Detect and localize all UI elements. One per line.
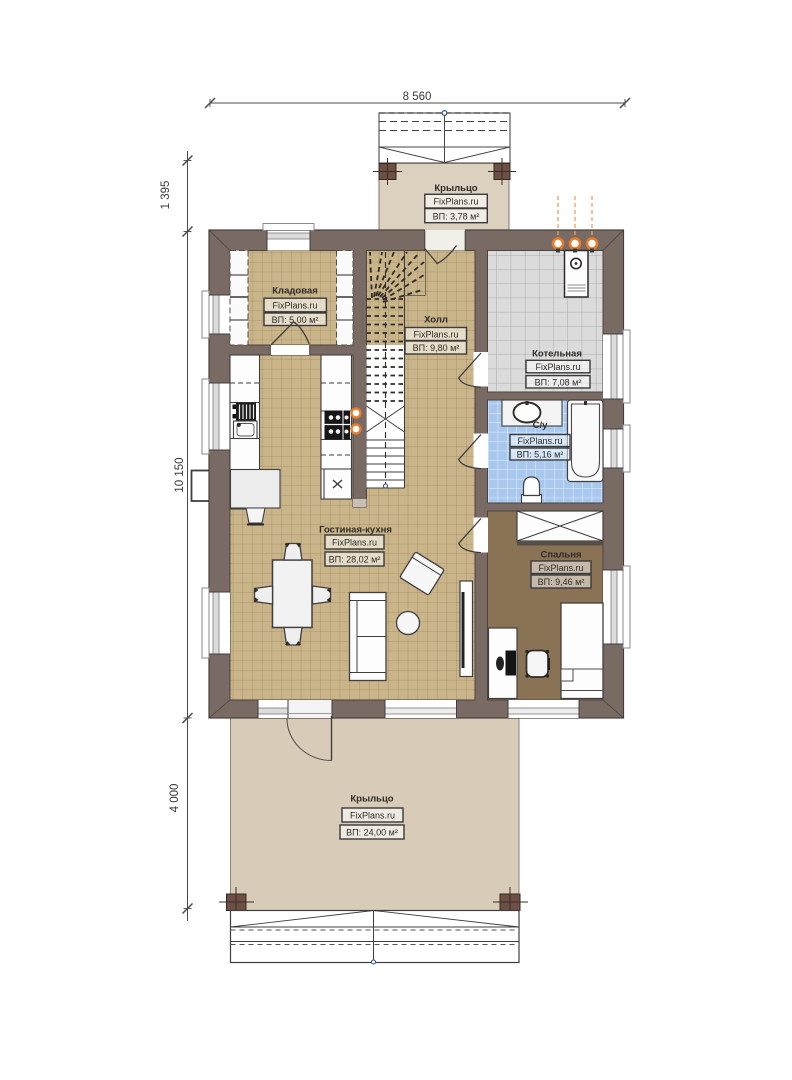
svg-text:ВП: 3,78 м²: ВП: 3,78 м²: [433, 211, 480, 221]
svg-text:ВП: 24,00 м²: ВП: 24,00 м²: [346, 828, 398, 838]
svg-text:4 000: 4 000: [169, 784, 181, 813]
svg-text:10 150: 10 150: [174, 457, 186, 492]
svg-text:Крыльцо: Крыльцо: [434, 183, 477, 194]
svg-text:ВП: 7,08 м²: ВП: 7,08 м²: [535, 377, 582, 387]
svg-text:1 395: 1 395: [160, 181, 172, 210]
svg-text:FixPlans.ru: FixPlans.ru: [535, 362, 580, 372]
svg-text:ВП: 9,46 м²: ВП: 9,46 м²: [538, 577, 585, 587]
svg-text:FixPlans.ru: FixPlans.ru: [517, 436, 562, 446]
svg-text:ВП: 9,80 м²: ВП: 9,80 м²: [413, 343, 460, 353]
svg-text:FixPlans.ru: FixPlans.ru: [272, 301, 317, 311]
svg-text:Холл: Холл: [424, 315, 448, 326]
svg-text:FixPlans.ru: FixPlans.ru: [413, 330, 458, 340]
svg-text:FixPlans.ru: FixPlans.ru: [538, 563, 583, 573]
svg-text:Кладовая: Кладовая: [272, 286, 318, 297]
svg-text:Котельная: Котельная: [532, 349, 582, 360]
svg-text:С/у: С/у: [533, 420, 549, 431]
svg-text:FixPlans.ru: FixPlans.ru: [433, 197, 478, 207]
svg-text:Спальня: Спальня: [540, 550, 581, 561]
svg-text:Крыльцо: Крыльцо: [350, 794, 393, 805]
svg-text:FixPlans.ru: FixPlans.ru: [332, 538, 377, 548]
svg-text:8 560: 8 560: [403, 91, 432, 103]
svg-text:FixPlans.ru: FixPlans.ru: [350, 811, 395, 821]
svg-text:ВП: 28,02 м²: ВП: 28,02 м²: [329, 555, 381, 565]
svg-text:ВП: 5,16 м²: ВП: 5,16 м²: [517, 450, 564, 460]
svg-text:Гостиная-кухня: Гостиная-кухня: [319, 525, 392, 536]
